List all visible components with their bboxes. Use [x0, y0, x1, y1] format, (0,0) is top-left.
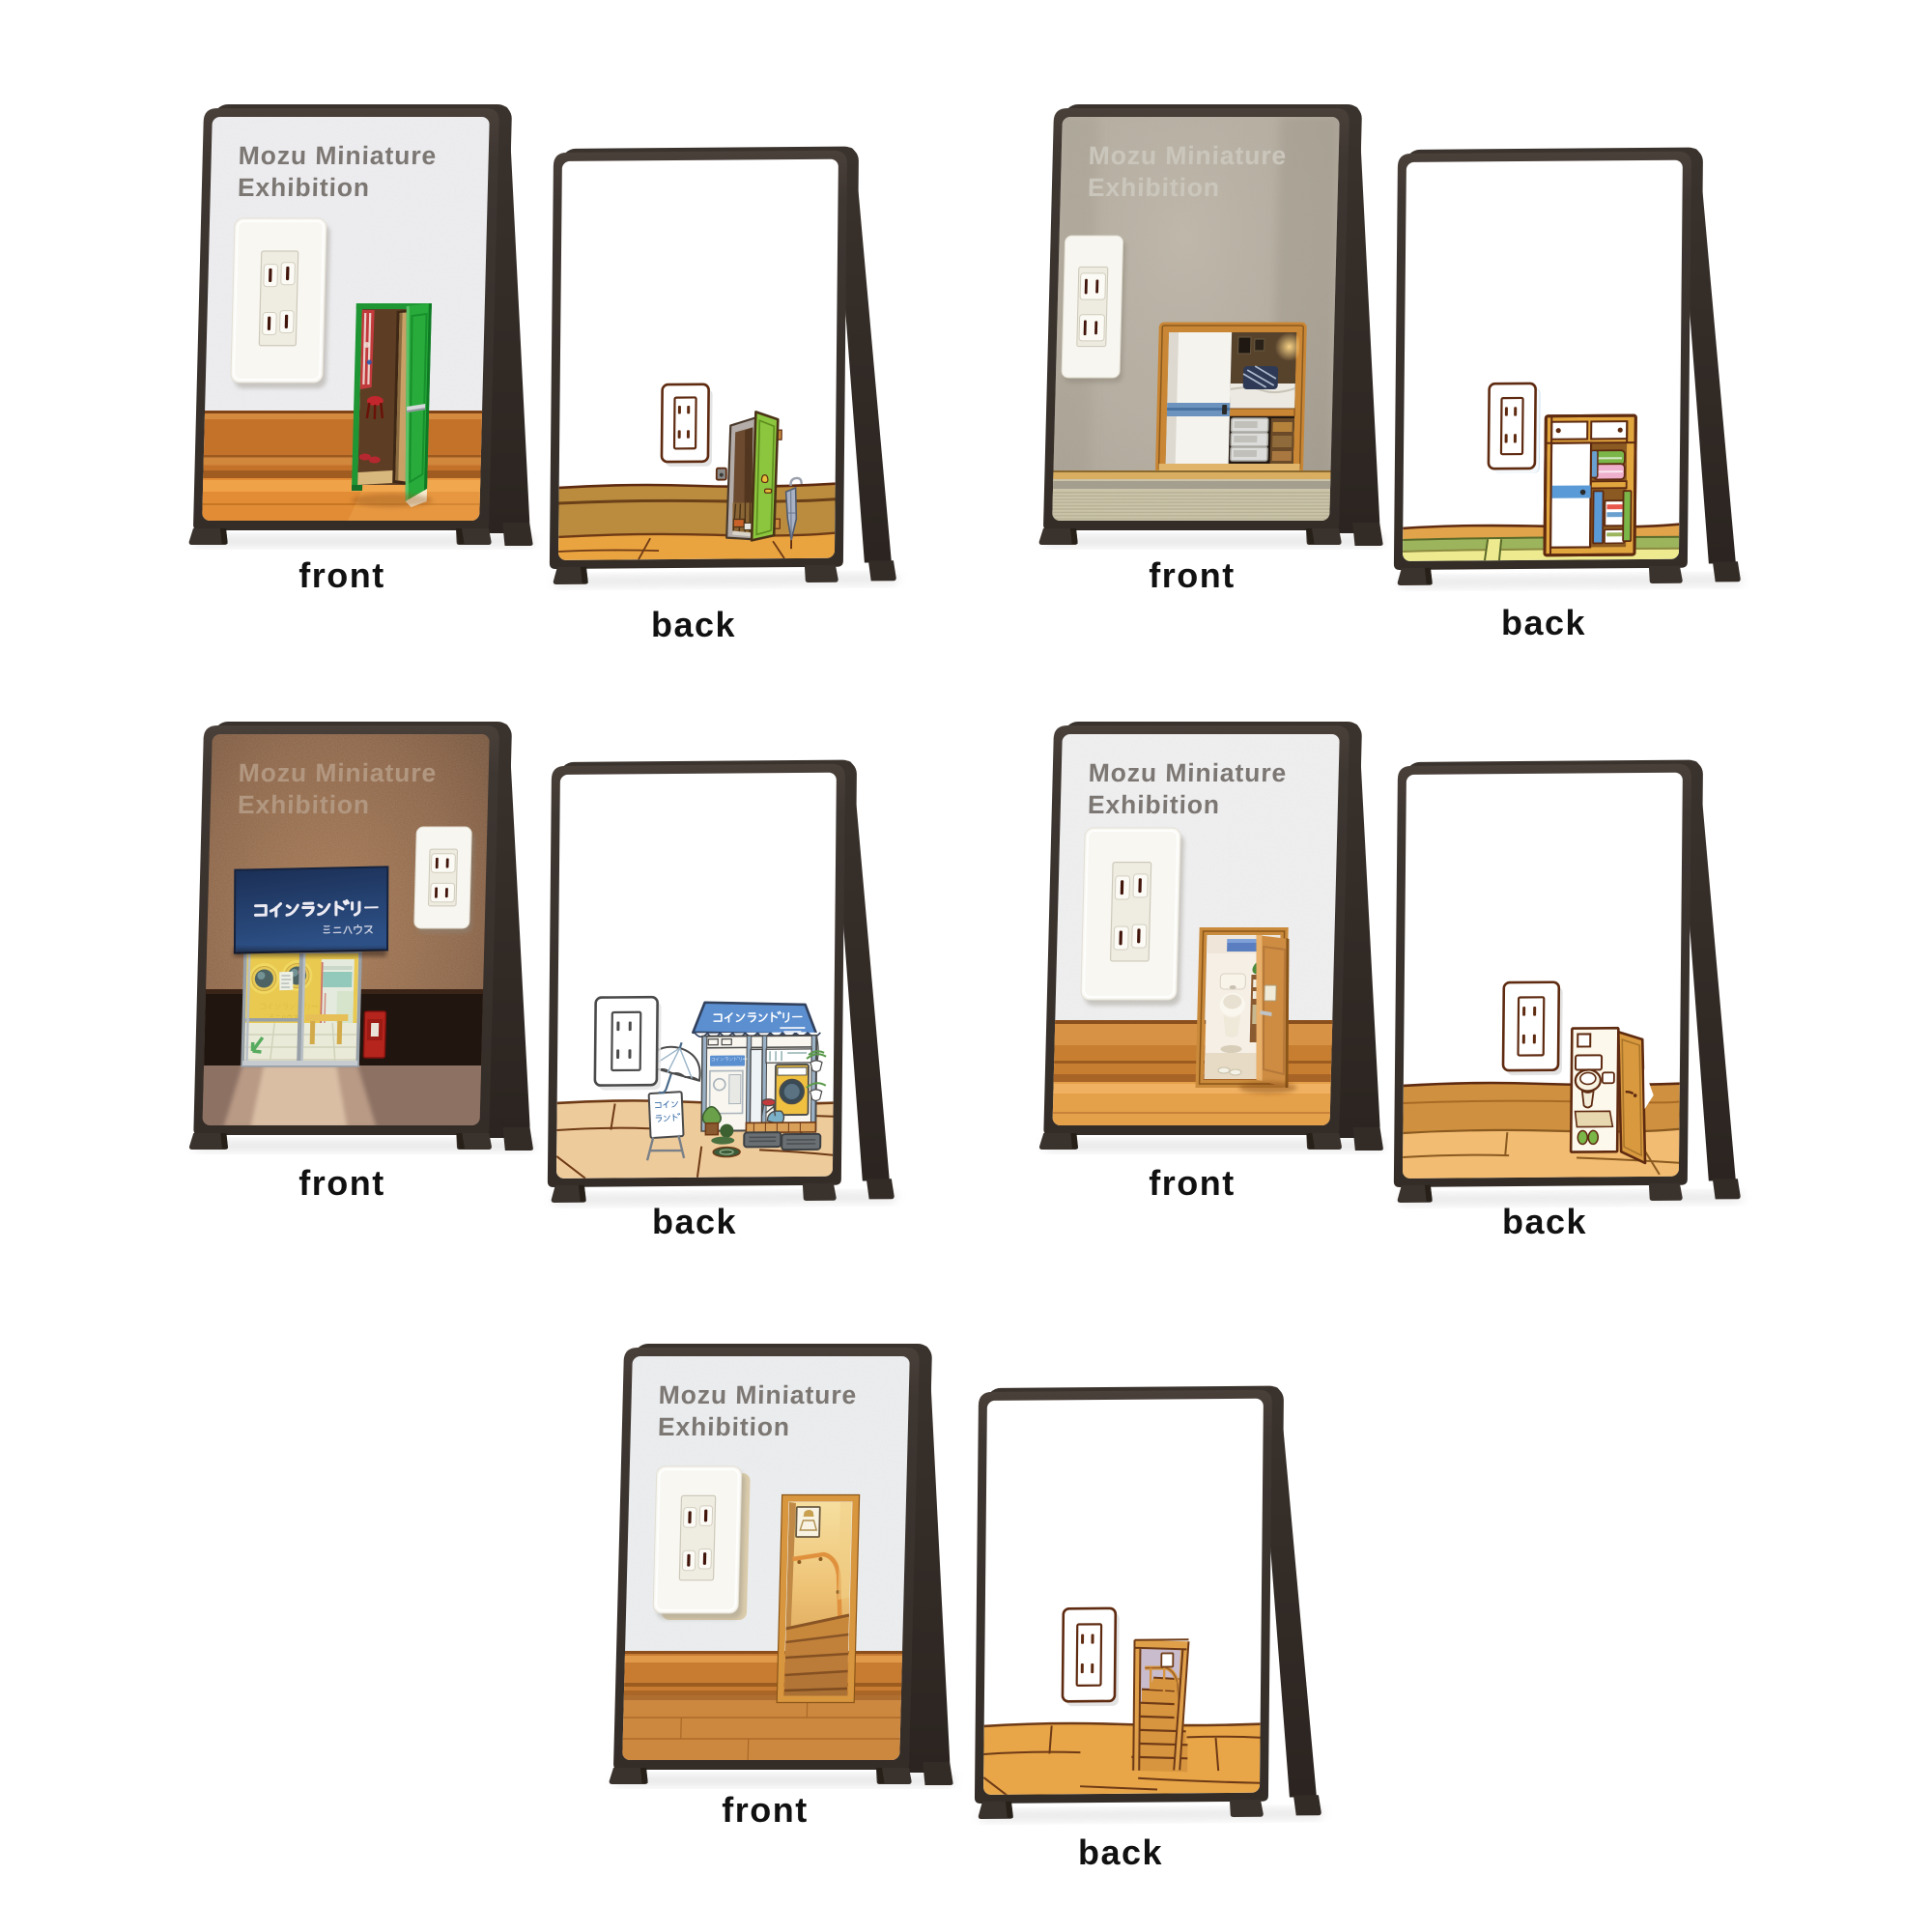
svg-text:front: front — [1149, 1163, 1235, 1203]
svg-text:front: front — [722, 1790, 808, 1830]
svg-text:Mozu Miniature: Mozu Miniature — [1088, 758, 1287, 787]
svg-text:Exhibition: Exhibition — [238, 173, 371, 202]
svg-text:Mozu Miniature: Mozu Miniature — [1088, 141, 1287, 170]
svg-text:front: front — [1149, 555, 1235, 595]
svg-text:Mozu Miniature: Mozu Miniature — [238, 758, 437, 787]
svg-text:back: back — [1078, 1833, 1163, 1872]
svg-text:back: back — [1502, 1202, 1587, 1241]
svg-text:Mozu Miniature: Mozu Miniature — [238, 141, 437, 170]
svg-text:Exhibition: Exhibition — [1088, 790, 1221, 819]
svg-text:back: back — [651, 605, 736, 644]
svg-text:back: back — [652, 1202, 737, 1241]
svg-text:back: back — [1501, 603, 1586, 642]
svg-text:Exhibition: Exhibition — [1088, 173, 1221, 202]
svg-text:Exhibition: Exhibition — [238, 790, 371, 819]
svg-text:front: front — [298, 1163, 384, 1203]
svg-text:front: front — [298, 555, 384, 595]
svg-text:Exhibition: Exhibition — [658, 1412, 791, 1441]
svg-text:Mozu Miniature: Mozu Miniature — [658, 1380, 857, 1409]
